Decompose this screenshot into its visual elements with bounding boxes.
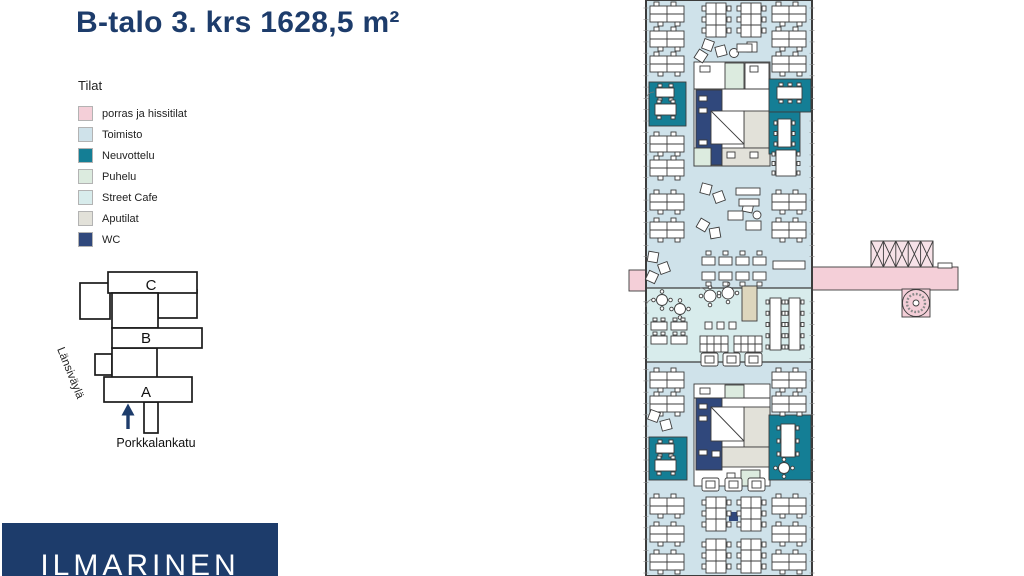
building-label-a: A	[141, 384, 151, 401]
legend-title: Tilat	[78, 78, 187, 93]
floor-plan	[600, 0, 1024, 576]
legend-item-aputilat: Aputilat	[78, 208, 187, 229]
page-title: B-talo 3. krs 1628,5 m²	[76, 6, 400, 40]
legend-label: porras ja hissitilat	[102, 108, 187, 120]
legend-swatch-wc	[78, 232, 93, 247]
legend-swatch-toimisto	[78, 127, 93, 142]
legend-swatch-streetcafe	[78, 190, 93, 205]
legend-label: Aputilat	[102, 213, 139, 225]
street-label-porkkalankatu: Porkkalankatu	[116, 436, 195, 450]
legend-item-toimisto: Toimisto	[78, 124, 187, 145]
slide: B-talo 3. krs 1628,5 m² Tilat porras ja …	[0, 0, 1024, 576]
legend-item-puhelu: Puhelu	[78, 166, 187, 187]
legend-swatch-puhelu	[78, 169, 93, 184]
legend-swatch-porras	[78, 106, 93, 121]
legend-swatch-neuvottelu	[78, 148, 93, 163]
legend: Tilat porras ja hissitilatToimistoNeuvot…	[78, 78, 187, 250]
legend-swatch-aputilat	[78, 211, 93, 226]
floor-plan-core-bottom	[694, 384, 770, 486]
site-map-buildings	[80, 272, 202, 433]
legend-label: Toimisto	[102, 129, 142, 141]
legend-item-neuvottelu: Neuvottelu	[78, 145, 187, 166]
legend-items: porras ja hissitilatToimistoNeuvotteluPu…	[78, 103, 187, 250]
legend-label: WC	[102, 234, 120, 246]
logo: ILMARINEN	[2, 523, 278, 576]
legend-label: Neuvottelu	[102, 150, 155, 162]
legend-label: Street Cafe	[102, 192, 158, 204]
legend-item-wc: WC	[78, 229, 187, 250]
north-arrow-icon	[122, 404, 135, 430]
logo-text: ILMARINEN	[2, 549, 278, 576]
floor-plan-core-top	[694, 62, 770, 166]
legend-label: Puhelu	[102, 171, 136, 183]
legend-item-streetcafe: Street Cafe	[78, 187, 187, 208]
cafe-counter	[742, 286, 757, 321]
building-label-c: C	[146, 277, 157, 294]
legend-item-porras: porras ja hissitilat	[78, 103, 187, 124]
street-label-lansivayla: Länsiväylä	[54, 346, 86, 401]
building-label-b: B	[141, 330, 151, 347]
site-map: C B A Länsiväylä Porkkalankatu	[40, 260, 250, 460]
